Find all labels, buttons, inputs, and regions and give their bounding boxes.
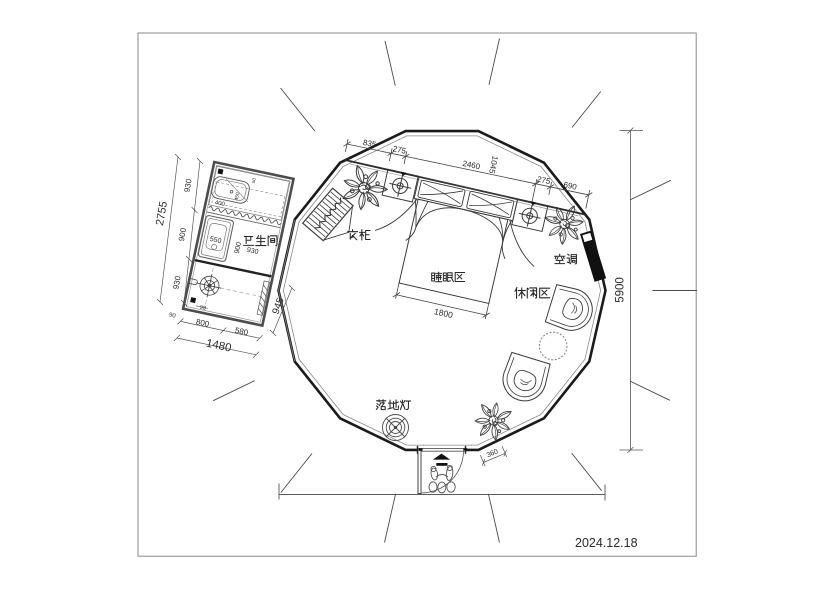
svg-text:5900: 5900	[615, 277, 627, 303]
svg-text:2024.12.18: 2024.12.18	[575, 536, 638, 550]
svg-text:90: 90	[199, 305, 206, 312]
